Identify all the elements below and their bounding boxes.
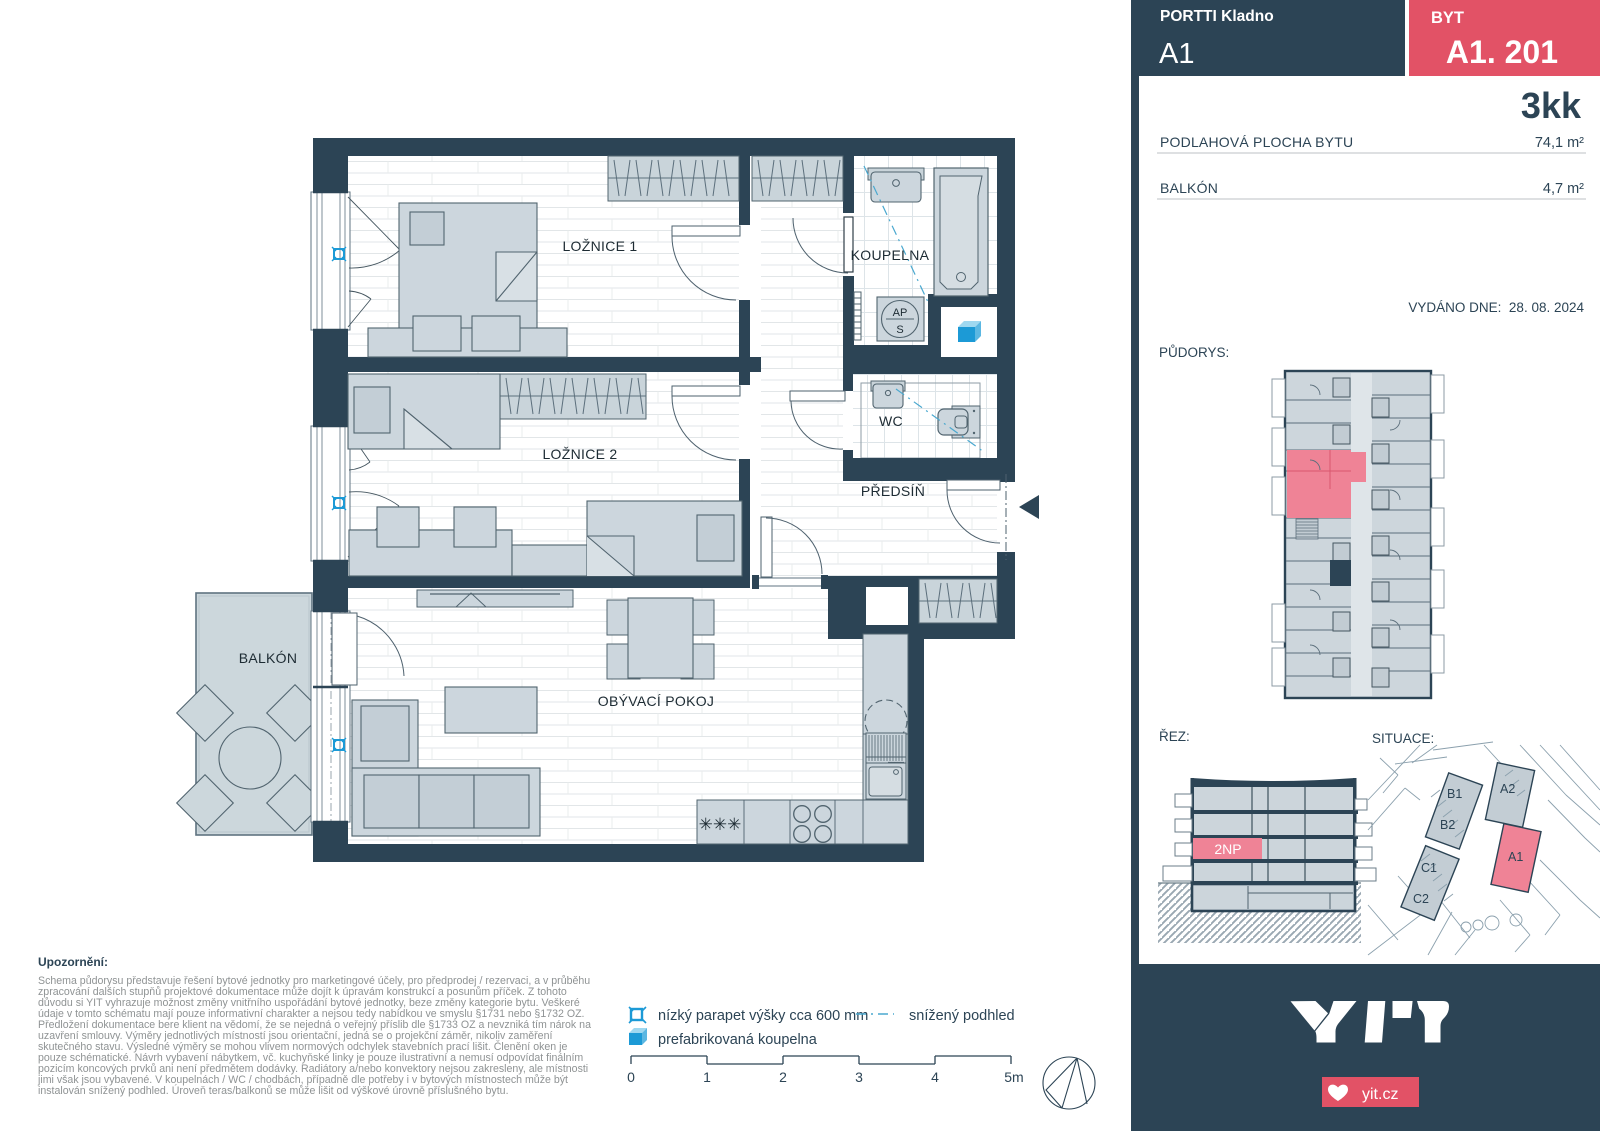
- svg-text:0: 0: [627, 1069, 635, 1085]
- svg-text:B2: B2: [1440, 818, 1455, 832]
- svg-text:Upozornění:: Upozornění:: [38, 955, 108, 969]
- svg-text:OBÝVACÍ POKOJ: OBÝVACÍ POKOJ: [598, 693, 714, 709]
- svg-text:4,7 m²: 4,7 m²: [1543, 181, 1584, 197]
- svg-text:5m: 5m: [1004, 1069, 1023, 1085]
- svg-text:nízký parapet výšky cca 600 mm: nízký parapet výšky cca 600 mm: [658, 1008, 868, 1024]
- svg-text:instalován snížený podhled. Úr: instalován snížený podhled. Úroveň teras…: [38, 1084, 509, 1097]
- svg-text:✳✳✳: ✳✳✳: [699, 815, 742, 834]
- svg-text:C1: C1: [1421, 861, 1437, 875]
- svg-text:WC: WC: [879, 413, 903, 429]
- svg-text:2NP: 2NP: [1214, 841, 1241, 857]
- svg-text:PŘEDSÍŇ: PŘEDSÍŇ: [861, 483, 925, 499]
- svg-text:SITUACE:: SITUACE:: [1372, 731, 1434, 746]
- svg-text:PŮDORYS:: PŮDORYS:: [1159, 345, 1229, 360]
- svg-text:prefabrikovaná koupelna: prefabrikovaná koupelna: [658, 1032, 818, 1048]
- svg-text:LOŽNICE 2: LOŽNICE 2: [542, 446, 617, 462]
- svg-text:yit.cz: yit.cz: [1362, 1086, 1398, 1103]
- svg-text:snížený podhled: snížený podhled: [909, 1008, 1015, 1024]
- svg-text:A1: A1: [1159, 38, 1194, 70]
- svg-text:3: 3: [855, 1069, 863, 1085]
- svg-text:AP: AP: [893, 307, 908, 319]
- svg-text:4: 4: [931, 1069, 939, 1085]
- svg-text:BALKÓN: BALKÓN: [239, 650, 298, 666]
- svg-text:2: 2: [779, 1069, 787, 1085]
- svg-text:BALKÓN: BALKÓN: [1160, 180, 1218, 196]
- svg-text:BYT: BYT: [1431, 9, 1464, 27]
- svg-text:1: 1: [703, 1069, 711, 1085]
- svg-text:B1: B1: [1447, 787, 1462, 801]
- svg-text:74,1 m²: 74,1 m²: [1535, 135, 1584, 151]
- svg-text:ŘEZ:: ŘEZ:: [1159, 729, 1190, 744]
- svg-text:KOUPELNA: KOUPELNA: [851, 247, 930, 263]
- svg-text:A1. 201: A1. 201: [1446, 34, 1558, 70]
- svg-text:VYDÁNO DNE: 28. 08. 2024: VYDÁNO DNE: 28. 08. 2024: [1408, 300, 1584, 315]
- svg-text:PODLAHOVÁ PLOCHA BYTU: PODLAHOVÁ PLOCHA BYTU: [1160, 134, 1353, 150]
- svg-text:S: S: [896, 324, 903, 336]
- svg-text:LOŽNICE 1: LOŽNICE 1: [562, 238, 637, 254]
- svg-text:3kk: 3kk: [1521, 85, 1582, 126]
- svg-text:A2: A2: [1500, 782, 1515, 796]
- svg-text:PORTTI Kladno: PORTTI Kladno: [1160, 8, 1274, 25]
- svg-text:A1: A1: [1508, 850, 1523, 864]
- svg-text:C2: C2: [1413, 892, 1429, 906]
